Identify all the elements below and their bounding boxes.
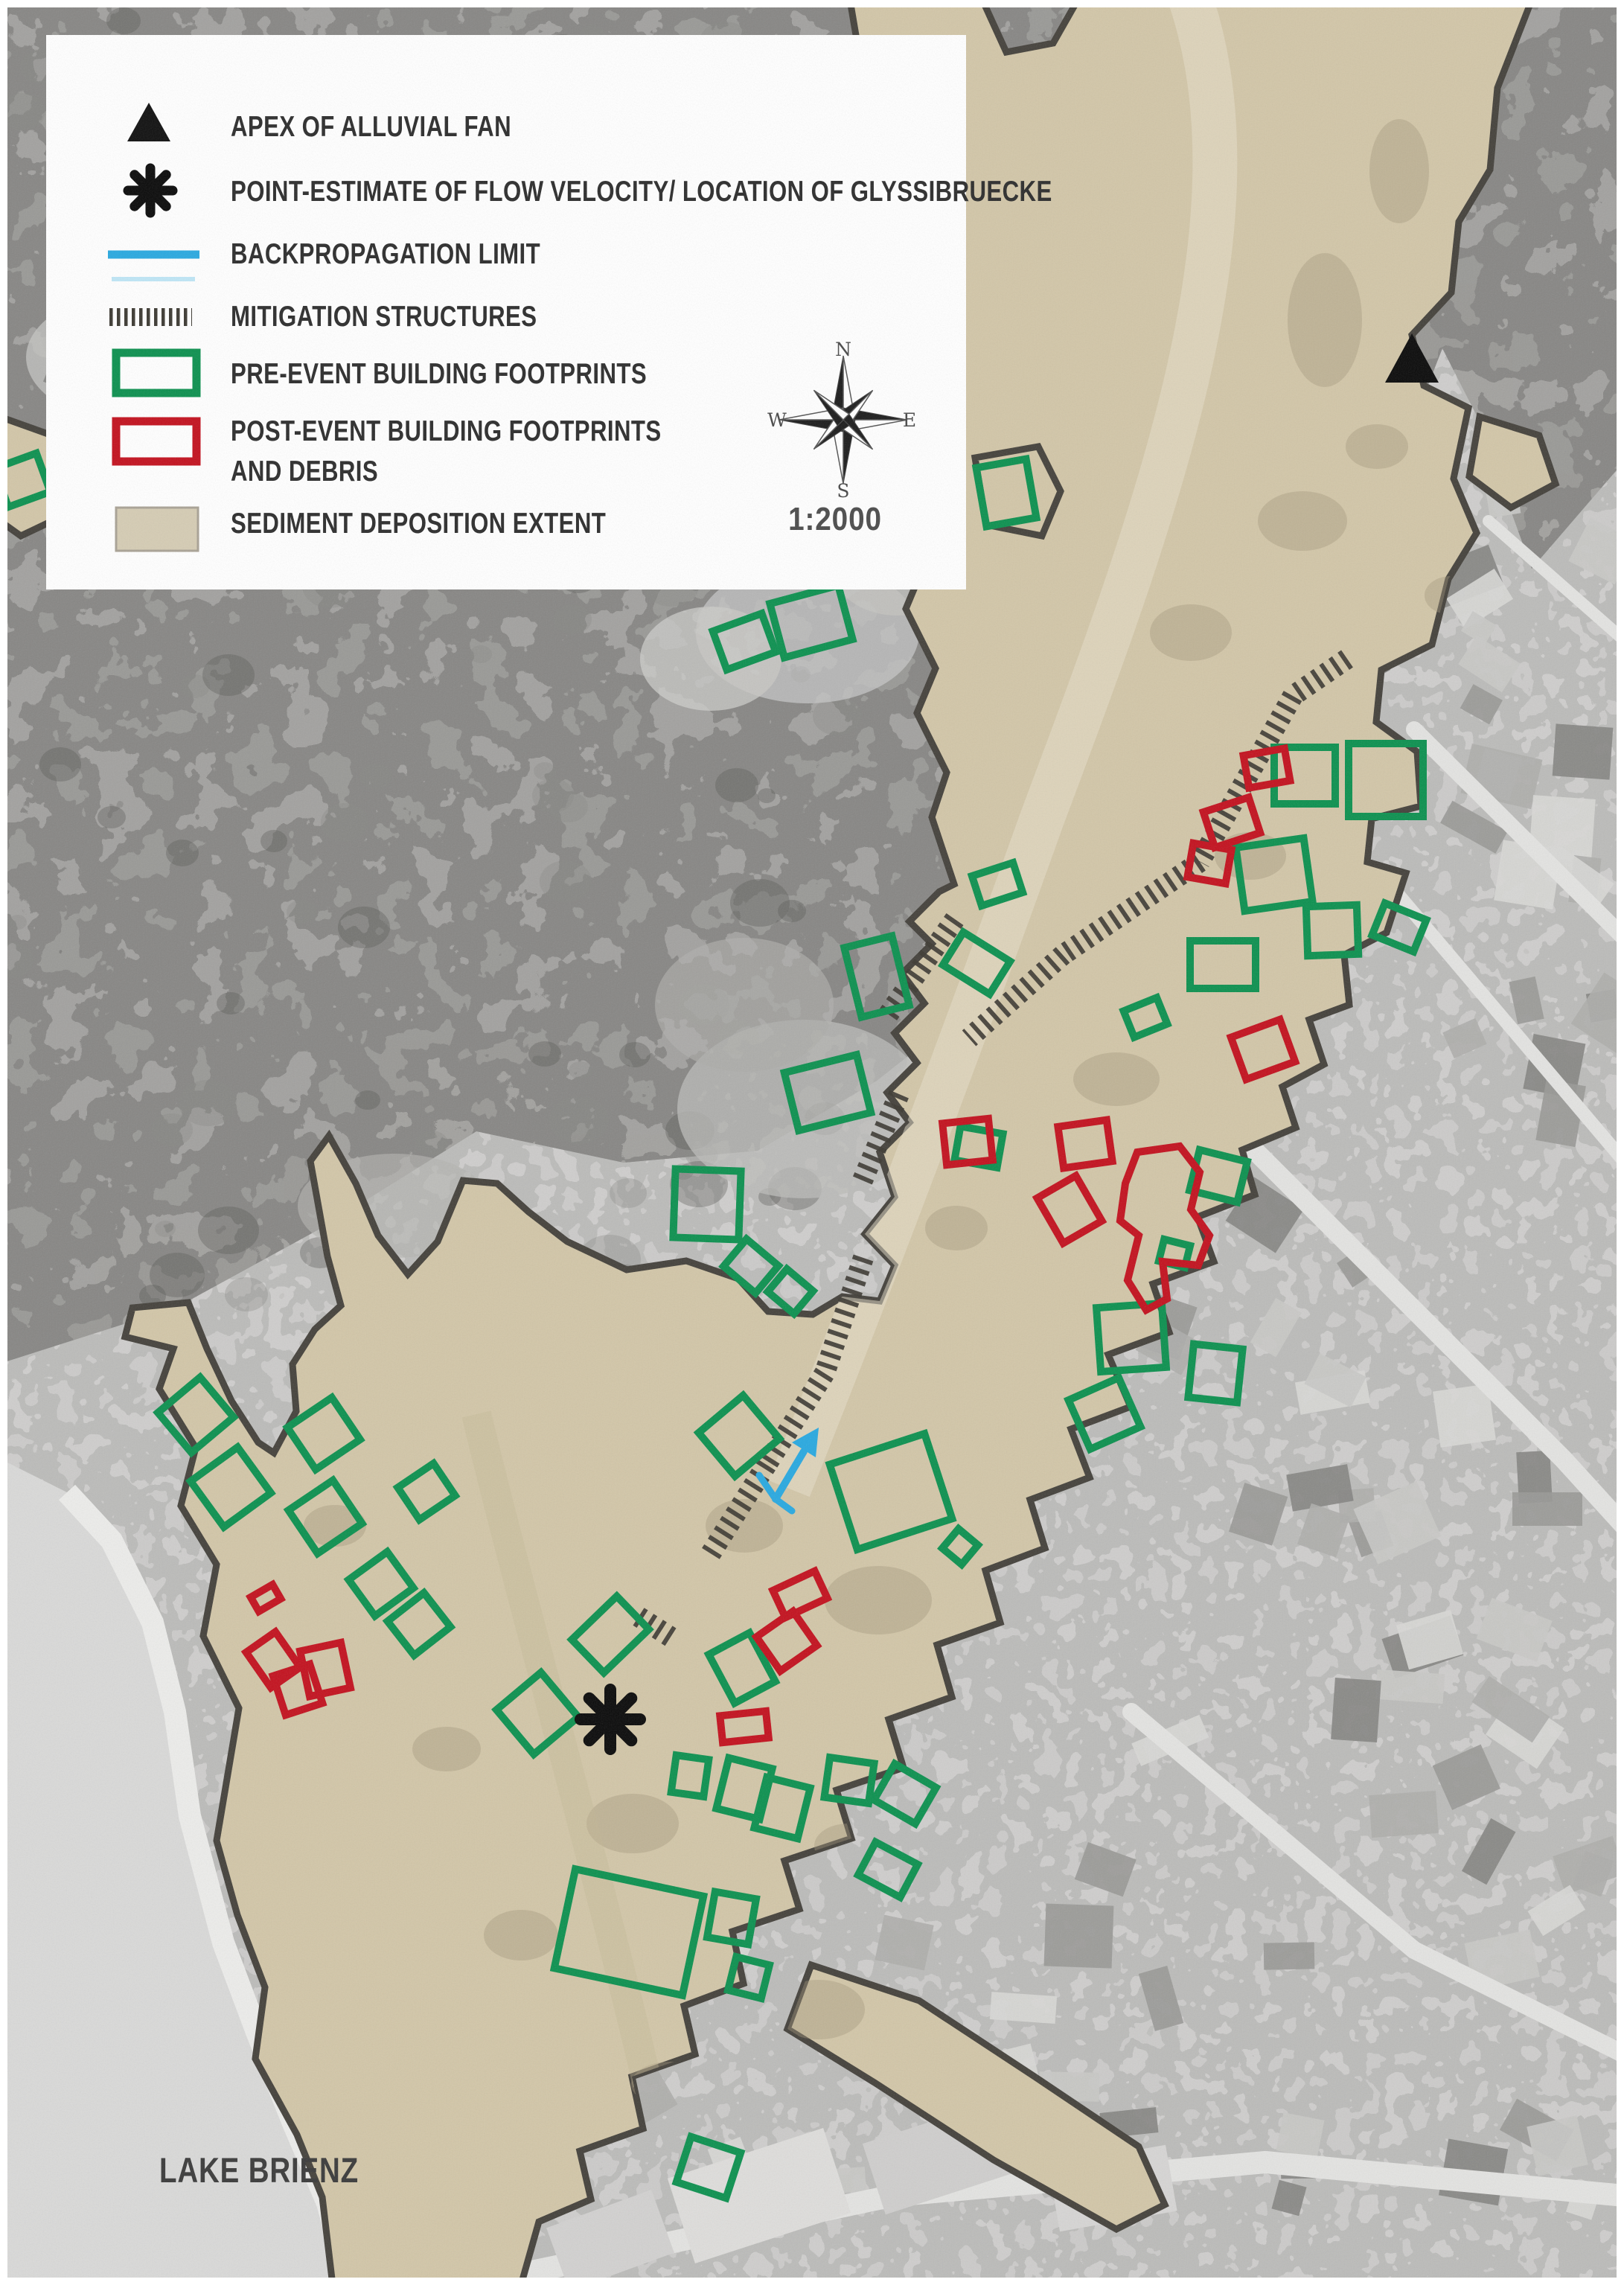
photo-grain-overlay	[0, 0, 1624, 2285]
map-figure: LAKE BRIENZ APEX OF ALLUVIAL FAN POINT-E…	[0, 0, 1624, 2285]
map-canvas: LAKE BRIENZ APEX OF ALLUVIAL FAN POINT-E…	[0, 0, 1624, 2285]
